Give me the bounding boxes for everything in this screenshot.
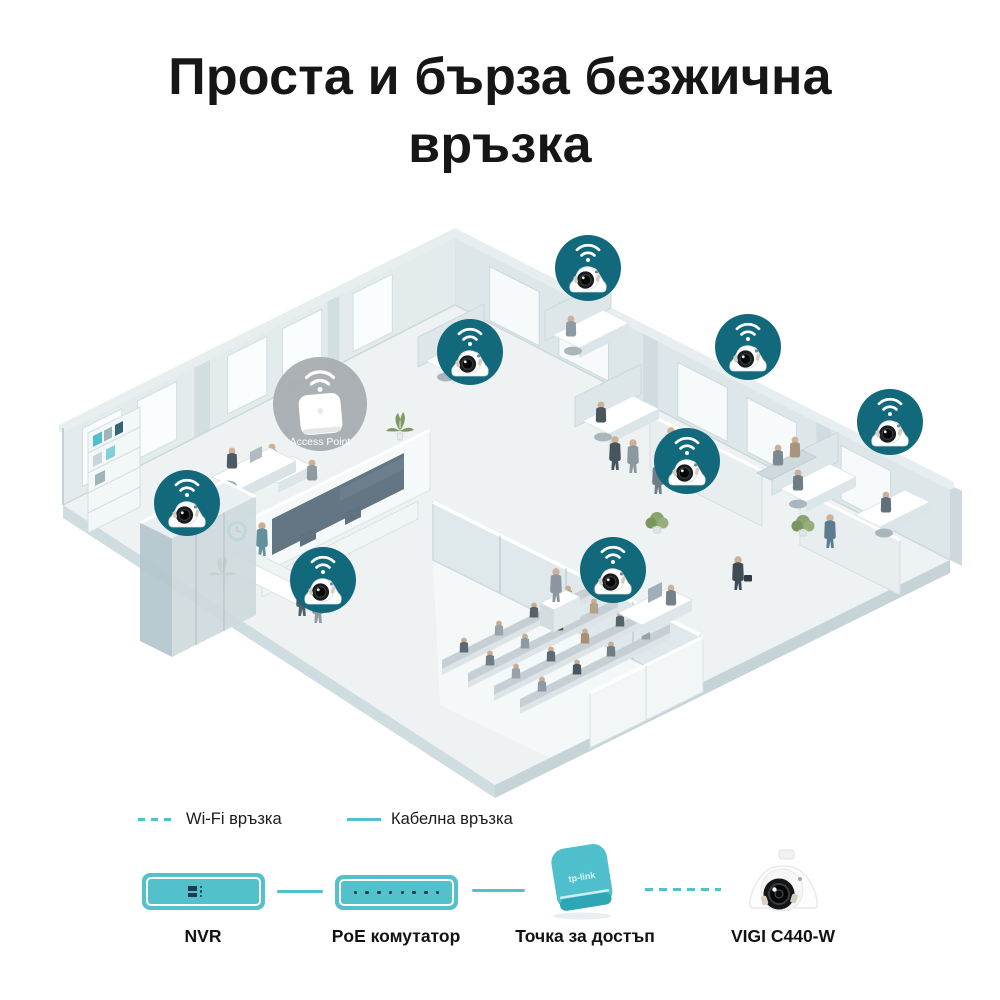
wireless-camera-badge bbox=[856, 388, 924, 456]
legend-wired-connection: Кабелна връзка bbox=[347, 808, 513, 830]
switch-ports-icon bbox=[335, 875, 458, 910]
wifi-link-ap-camera bbox=[645, 888, 721, 891]
page: Проста и бърза безжична връзка bbox=[0, 0, 1000, 1000]
wireless-camera-badge bbox=[714, 313, 782, 381]
wireless-camera-badge bbox=[289, 546, 357, 614]
access-point-device-icon bbox=[298, 392, 343, 436]
wireless-camera-badge bbox=[653, 427, 721, 495]
legend-wifi-connection: Wi-Fi връзка bbox=[138, 808, 282, 830]
legend-wired-label: Кабелна връзка bbox=[391, 810, 513, 829]
legend-wifi-label: Wi-Fi връзка bbox=[186, 810, 282, 829]
page-title: Проста и бърза безжична връзка bbox=[90, 44, 910, 179]
camera-model-label: VIGI C440-W bbox=[731, 926, 835, 947]
turret-camera-icon bbox=[737, 846, 831, 927]
wireless-camera-badge bbox=[554, 234, 622, 302]
office-building-illustration bbox=[0, 205, 1000, 805]
access-point-icon: tp-link bbox=[538, 838, 624, 922]
wifi-dashed-line-icon bbox=[138, 818, 176, 821]
access-point-badge: Access Point bbox=[272, 356, 368, 452]
nvr-icon bbox=[142, 873, 265, 910]
access-point-label: Access Point bbox=[290, 436, 351, 448]
poe-switch-icon bbox=[335, 875, 458, 910]
poe-switch-label: PoE комутатор bbox=[332, 926, 461, 947]
nvr-label: NVR bbox=[185, 926, 222, 947]
wireless-camera-badge bbox=[579, 536, 647, 604]
office-isometric-scene: Access Point bbox=[0, 205, 1000, 805]
nvr-drive-icon bbox=[188, 873, 202, 910]
wired-link-switch-ap bbox=[472, 889, 525, 892]
wired-solid-line-icon bbox=[347, 818, 381, 821]
wired-link-nvr-switch bbox=[277, 890, 323, 893]
wireless-camera-badge bbox=[436, 318, 504, 386]
access-point-device-label: Точка за достъп bbox=[515, 926, 655, 947]
wireless-camera-badge bbox=[153, 469, 221, 537]
